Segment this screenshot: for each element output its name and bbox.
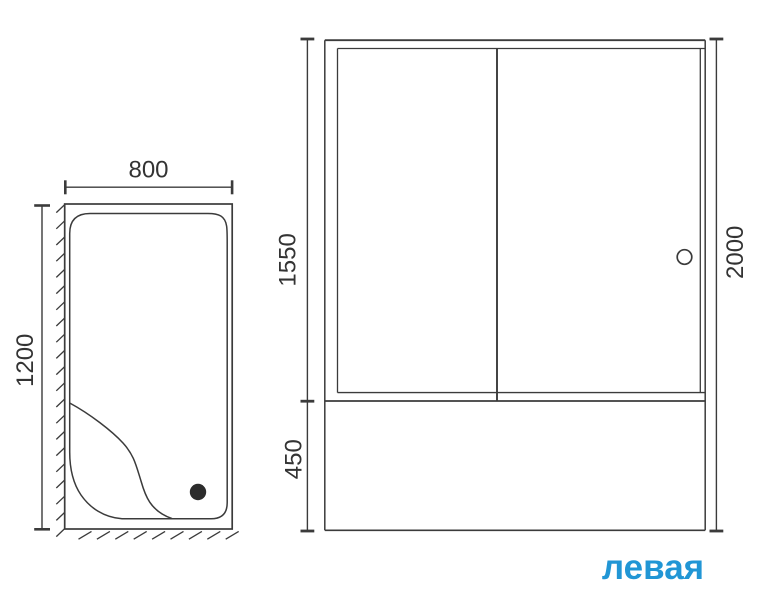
svg-text:1550: 1550 (274, 233, 301, 286)
svg-text:800: 800 (128, 157, 168, 184)
svg-text:450: 450 (280, 439, 307, 479)
svg-text:2000: 2000 (722, 226, 749, 279)
svg-text:1200: 1200 (12, 334, 39, 387)
svg-text:левая: левая (602, 548, 704, 587)
